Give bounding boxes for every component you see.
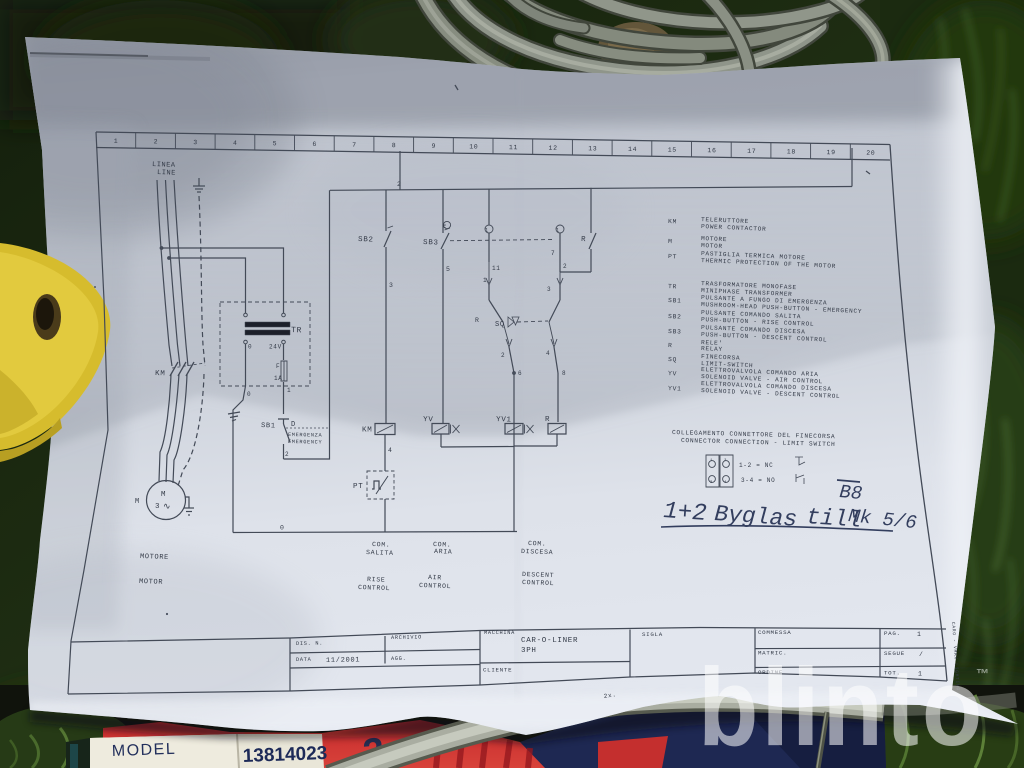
svg-text:YV1: YV1: [668, 385, 682, 393]
svg-text:SB1: SB1: [668, 297, 682, 305]
svg-text:8: 8: [392, 142, 397, 149]
svg-text:2: 2: [563, 263, 567, 270]
svg-text:R: R: [668, 342, 673, 349]
svg-text:1: 1: [287, 387, 291, 394]
svg-text:PT: PT: [668, 253, 677, 260]
svg-text:0: 0: [247, 391, 251, 398]
svg-text:1: 1: [485, 228, 489, 234]
svg-text:YV: YV: [423, 416, 434, 424]
svg-text:1: 1: [483, 277, 487, 284]
svg-text:9: 9: [431, 143, 436, 150]
svg-text:3: 3: [193, 139, 198, 146]
svg-text:18: 18: [787, 148, 796, 155]
svg-text:6: 6: [518, 370, 522, 377]
svg-text:16: 16: [707, 147, 716, 154]
svg-text:blinto: blinto: [698, 646, 985, 768]
svg-text:SB2: SB2: [668, 313, 682, 321]
svg-text:R: R: [581, 236, 586, 244]
svg-text:CONTROL: CONTROL: [358, 584, 390, 592]
svg-text:SIGLA: SIGLA: [642, 631, 663, 638]
svg-text:7: 7: [551, 250, 555, 257]
svg-text:4: 4: [724, 481, 727, 485]
svg-text:8: 8: [562, 370, 566, 377]
svg-text:7: 7: [352, 142, 357, 149]
svg-text:17: 17: [747, 148, 756, 155]
svg-text:DESCENT: DESCENT: [522, 571, 554, 579]
svg-text:YV: YV: [668, 370, 677, 377]
svg-text:TR: TR: [668, 283, 677, 290]
svg-text:AIR: AIR: [428, 574, 442, 581]
svg-text:RISE: RISE: [367, 576, 386, 584]
svg-text:0: 0: [280, 525, 285, 532]
svg-text:3: 3: [389, 282, 394, 289]
svg-text:2: 2: [397, 181, 402, 188]
svg-text:5: 5: [273, 140, 278, 147]
svg-text:4: 4: [233, 140, 238, 147]
svg-text:1: 1: [114, 138, 119, 145]
svg-text:1+2: 1+2: [662, 498, 707, 528]
svg-text:KM: KM: [668, 218, 677, 225]
svg-text:3PH: 3PH: [521, 647, 537, 655]
svg-text:15: 15: [668, 147, 677, 154]
svg-text:3-4 = NO: 3-4 = NO: [741, 477, 775, 484]
svg-text:DATA: DATA: [296, 657, 312, 663]
svg-text:MOTOR: MOTOR: [701, 242, 723, 250]
svg-text:TR: TR: [291, 326, 302, 335]
svg-text:AGG.: AGG.: [391, 656, 407, 662]
svg-text:SB3: SB3: [668, 328, 682, 336]
svg-text:1: 1: [710, 459, 713, 463]
svg-text:2: 2: [724, 459, 727, 463]
svg-text:D: D: [291, 421, 296, 429]
svg-text:3: 3: [710, 481, 713, 485]
svg-text:10: 10: [469, 143, 478, 150]
svg-text:SB3: SB3: [423, 239, 439, 248]
svg-text:MACCHINA: MACCHINA: [484, 630, 515, 636]
svg-text:2: 2: [285, 451, 289, 458]
svg-text:20: 20: [866, 150, 875, 157]
svg-text:LINE: LINE: [157, 169, 176, 178]
svg-text:13814023: 13814023: [242, 743, 327, 767]
svg-text:DISCESA: DISCESA: [521, 548, 553, 556]
svg-text:MOTOR: MOTOR: [139, 578, 163, 587]
svg-text:11: 11: [509, 144, 518, 151]
svg-text:COM.: COM.: [528, 540, 547, 548]
svg-text:ARIA: ARIA: [434, 548, 453, 556]
svg-text:CAR-O-LINER: CAR-O-LINER: [521, 637, 578, 645]
svg-text:SB1: SB1: [261, 422, 276, 431]
svg-text:M: M: [668, 238, 673, 245]
svg-text:M: M: [135, 498, 140, 506]
svg-text:11/2001: 11/2001: [326, 656, 360, 665]
svg-text:KM: KM: [362, 427, 372, 435]
svg-text:B8: B8: [838, 481, 863, 505]
svg-text:1A: 1A: [274, 375, 283, 382]
svg-text:M: M: [161, 491, 166, 499]
svg-text:1-2 = NC: 1-2 = NC: [739, 462, 773, 469]
svg-text:F: F: [276, 363, 280, 370]
svg-text:PT: PT: [353, 483, 363, 491]
svg-text:ARCHIVIO: ARCHIVIO: [391, 634, 422, 641]
svg-text:COMMESSA: COMMESSA: [758, 629, 791, 636]
svg-text:0: 0: [248, 344, 252, 351]
svg-text:RELAY: RELAY: [701, 345, 723, 353]
svg-text:SQ: SQ: [668, 356, 677, 363]
svg-text:COM.: COM.: [372, 541, 391, 549]
svg-text:13: 13: [588, 145, 597, 152]
svg-text:MOTORE: MOTORE: [140, 553, 169, 562]
svg-text:24V: 24V: [269, 344, 282, 351]
svg-text:YV1: YV1: [496, 416, 512, 425]
svg-text:19: 19: [826, 149, 835, 156]
svg-text:2: 2: [154, 138, 159, 145]
svg-text:CLIENTE: CLIENTE: [483, 667, 512, 674]
svg-text:SQ: SQ: [495, 321, 505, 329]
svg-text:4: 4: [388, 447, 393, 454]
svg-text:2: 2: [501, 352, 505, 359]
svg-text:EMERGENCY: EMERGENCY: [288, 439, 323, 446]
svg-text:R: R: [545, 416, 550, 424]
svg-text:MODEL: MODEL: [112, 741, 177, 760]
svg-text:11: 11: [492, 265, 501, 272]
svg-text:DIS. N.: DIS. N.: [296, 641, 323, 647]
svg-text:PAG.: PAG.: [884, 630, 901, 637]
svg-text:3: 3: [155, 503, 160, 511]
svg-text:14: 14: [628, 146, 637, 153]
svg-text:1: 1: [917, 631, 922, 638]
svg-text:3: 3: [547, 286, 551, 293]
svg-text:EMERGENZA: EMERGENZA: [288, 432, 323, 439]
svg-text:CONTROL: CONTROL: [522, 579, 554, 587]
svg-text:1: 1: [556, 228, 560, 234]
svg-text:SALITA: SALITA: [366, 549, 394, 557]
svg-text:™: ™: [976, 666, 989, 681]
svg-text:R: R: [475, 317, 480, 324]
svg-text:6: 6: [312, 141, 317, 148]
svg-text:4: 4: [546, 350, 550, 357]
svg-text:12: 12: [548, 145, 557, 152]
svg-text:SB2: SB2: [358, 236, 374, 245]
svg-text:∿: ∿: [163, 502, 171, 512]
svg-text:5: 5: [446, 266, 451, 273]
svg-text:KM: KM: [155, 370, 166, 378]
svg-text:E: E: [443, 224, 447, 230]
svg-text:CONTROL: CONTROL: [419, 582, 451, 590]
